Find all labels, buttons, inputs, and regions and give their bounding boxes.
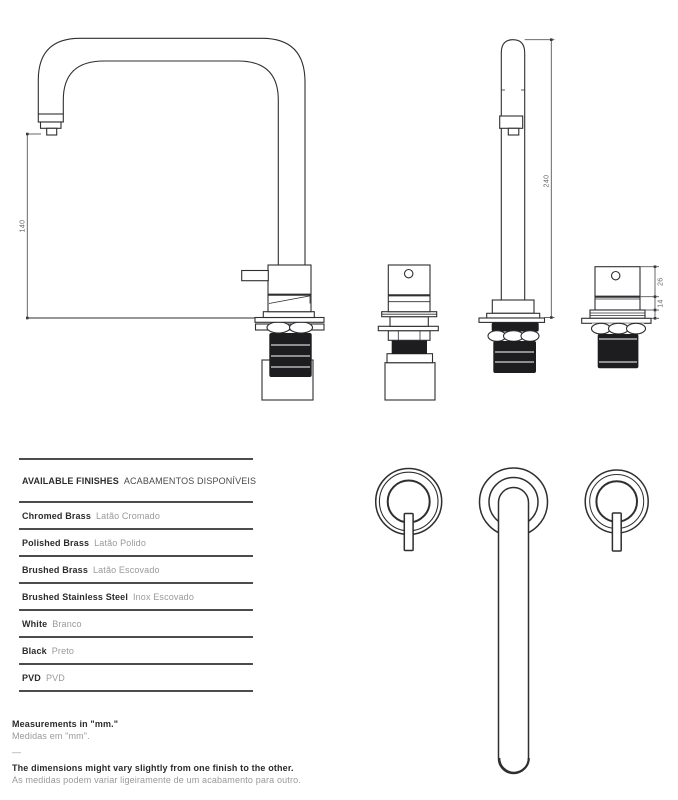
finish-row-polished-brass: Polished Brass Latão Polido — [19, 530, 253, 557]
faucet-side-view-drawing: 240 — [479, 38, 555, 373]
handle-top-view-left — [376, 469, 442, 551]
disclaimer-note-pt: As medidas podem variar ligeiramente de … — [12, 774, 301, 786]
finish-name-en: Chromed Brass — [22, 511, 91, 521]
finishes-title-pt: ACABAMENTOS DISPONÍVEIS — [124, 476, 256, 486]
spec-sheet-page: 140 — [0, 0, 678, 800]
finish-name-en: Polished Brass — [22, 538, 89, 548]
finish-name-en: Brushed Stainless Steel — [22, 592, 128, 602]
finish-name-pt: Branco — [52, 619, 81, 629]
finishes-table-header: AVAILABLE FINISHES ACABAMENTOS DISPONÍVE… — [19, 460, 253, 503]
finish-name-en: PVD — [22, 673, 41, 683]
finish-name-pt: Latão Polido — [94, 538, 146, 548]
dimension-spout-height: 140 — [20, 133, 42, 320]
measurements-note-pt: Medidas em "mm". — [12, 730, 301, 742]
finish-row-brushed-stainless-steel: Brushed Stainless Steel Inox Escovado — [19, 584, 253, 611]
finish-name-en: Brushed Brass — [22, 565, 88, 575]
disclaimer-note-en: The dimensions might vary slightly from … — [12, 762, 301, 774]
finish-row-pvd: PVD PVD — [19, 665, 253, 692]
dimension-label-14: 14 — [658, 299, 665, 308]
dimension-label-240: 240 — [544, 175, 551, 188]
dimension-label-26: 26 — [658, 277, 665, 286]
finish-row-chromed-brass: Chromed Brass Latão Cromado — [19, 503, 253, 530]
finish-name-pt: PVD — [46, 673, 65, 683]
valve-front-view-drawing: 26 14 — [582, 265, 665, 368]
finishes-table: AVAILABLE FINISHES ACABAMENTOS DISPONÍVE… — [19, 458, 253, 692]
finish-name-pt: Inox Escovado — [133, 592, 194, 602]
handle-top-view-right — [585, 470, 648, 551]
finish-row-black: Black Preto — [19, 638, 253, 665]
finish-name-pt: Latão Cromado — [96, 511, 160, 521]
technical-drawings: 140 — [0, 0, 678, 445]
faucet-front-view-drawing: 140 — [20, 38, 325, 400]
dimension-label-140: 140 — [20, 220, 27, 233]
finish-name-pt: Preto — [52, 646, 74, 656]
finishes-title-en: AVAILABLE FINISHES — [22, 476, 119, 486]
finish-row-brushed-brass: Brushed Brass Latão Escovado — [19, 557, 253, 584]
finish-name-en: White — [22, 619, 47, 629]
notes-separator: — — [12, 747, 301, 757]
measurements-note-en: Measurements in "mm." — [12, 718, 301, 730]
dimension-total-height: 240 — [525, 38, 555, 318]
top-view-drawings — [340, 440, 678, 800]
spout-top-view — [480, 468, 548, 774]
finish-row-white: White Branco — [19, 611, 253, 638]
valve-side-view-drawing — [378, 265, 438, 400]
footer-notes: Measurements in "mm." Medidas em "mm". —… — [12, 718, 301, 786]
finish-name-pt: Latão Escovado — [93, 565, 160, 575]
finish-name-en: Black — [22, 646, 47, 656]
